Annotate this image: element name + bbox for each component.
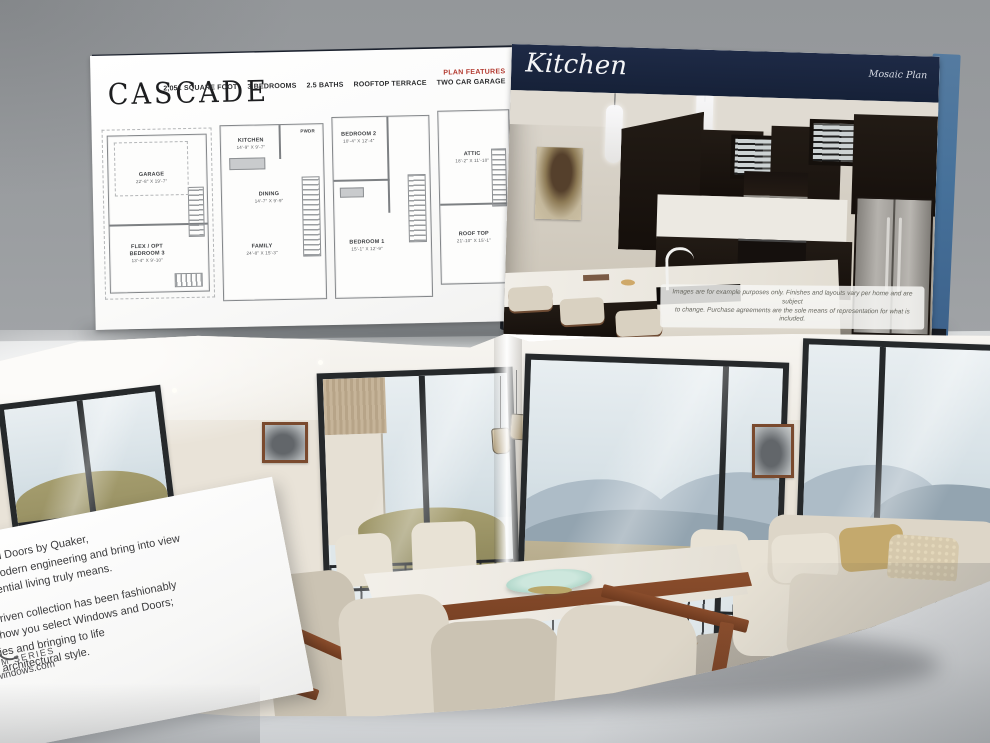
pendant-light (605, 105, 624, 163)
floorplan-stairs (408, 174, 427, 242)
room-name: BEDROOM 2 (341, 131, 376, 138)
room-label-flex: FLEX / OPT BEDROOM 3 13'-4" X 9'-10" (116, 243, 178, 264)
island-decor-books (583, 274, 609, 281)
photo-disclaimer: Images are for example purposes only. Fi… (660, 284, 924, 329)
room-dims: 18'-2" X 11'-10" (449, 158, 495, 165)
kitchen-photo: Images are for example purposes only. Fi… (503, 90, 938, 347)
stat-rooftop: ROOFTOP TERRACE (354, 80, 427, 89)
framed-photo-art (265, 425, 305, 460)
bar-stool (508, 285, 553, 311)
range-hood (744, 171, 809, 199)
kitchen-page: Kitchen Mosaic Plan (503, 44, 940, 359)
recessed-light (318, 360, 323, 365)
floorplan-stairs (188, 187, 205, 237)
room-dims: 10'-4" X 12'-4" (337, 138, 381, 145)
room-name: ATTIC (464, 151, 481, 157)
room-label-dining: DINING 14'-7" X 9'-9" (244, 191, 294, 205)
floorplan-bedroom-level: BEDROOM 2 10'-4" X 12'-4" BEDROOM 1 15'-… (331, 115, 433, 299)
room-label-bedroom1: BEDROOM 1 15'-1" X 12'-9" (343, 239, 391, 253)
room-label-attic: ATTIC 18'-2" X 11'-10" (449, 151, 495, 165)
floorplan-stairs (491, 148, 507, 206)
framed-photo-left (262, 422, 308, 463)
room-name: PWDR (300, 128, 315, 133)
room-name: DINING (259, 191, 280, 197)
framed-photo-right (752, 424, 794, 478)
plan-name-label: Mosaic Plan (869, 69, 928, 82)
room-dims: 14'-7" X 9'-9" (244, 198, 294, 205)
room-label-bedroom2: BEDROOM 2 10'-4" X 12'-4" (337, 131, 381, 145)
floorplan-stairs (302, 176, 322, 256)
stat-bedrooms: 3 BEDROOMS (247, 83, 296, 91)
room-label-family: FAMILY 24'-8" X 15'-3" (237, 243, 287, 257)
fridge-handle (897, 218, 902, 292)
room-dims: 13'-4" X 9'-10" (116, 257, 178, 264)
floorplan-wall (334, 179, 390, 182)
room-name: ROOF TOP (459, 231, 489, 238)
room-name: FAMILY (252, 243, 273, 249)
room-dims: 21'-10" X 15'-1" (449, 238, 499, 245)
room-dims: 24'-8" X 15'-3" (237, 250, 287, 257)
recessed-light (172, 388, 177, 393)
disclaimer-line-2: to change. Purchase agreements are the s… (675, 306, 910, 323)
room-name: BEDROOM 1 (349, 239, 384, 246)
disclaimer-line-1: Images are for example purposes only. Fi… (672, 288, 912, 305)
floorplan-garage-level: GARAGE 22'-8" X 19'-7" FLEX / OPT BEDROO… (107, 134, 210, 294)
island-decor-bowl (621, 279, 635, 285)
room-name: KITCHEN (238, 137, 264, 144)
cascade-page: CASCADE PLAN FEATURES 2,051 SQUARE FOOT … (90, 47, 520, 330)
photo-scene: CASCADE PLAN FEATURES 2,051 SQUARE FOOT … (0, 0, 990, 743)
room-name: GARAGE (139, 171, 164, 178)
plan-title: CASCADE (107, 75, 269, 112)
floorplan-wall (278, 125, 280, 159)
room-label-rooftop: ROOF TOP 21'-10" X 15'-1" (449, 230, 499, 244)
bar-stool (559, 297, 604, 325)
stat-garage: TWO CAR GARAGE (437, 78, 506, 86)
floorplan-kitchen-island (229, 157, 265, 170)
room-dims: 15'-1" X 12'-9" (343, 246, 391, 253)
floorplan-entry-steps (175, 273, 203, 288)
stat-baths: 2.5 BATHS (306, 82, 343, 90)
floorplan-roof-level: ATTIC 18'-2" X 11'-10" ROOF TOP 21'-10" … (437, 109, 513, 284)
floorplan-wall (386, 117, 390, 213)
floorplan-bath-vanity (340, 187, 364, 198)
room-label-garage: GARAGE 22'-8" X 19'-7" (116, 171, 186, 185)
room-label-kitchen: KITCHEN 14'-9" X 9'-7" (229, 137, 273, 151)
kitchen-page-title: Kitchen (525, 48, 627, 81)
bar-stool (615, 309, 662, 338)
room-dims: 14'-9" X 9'-7" (229, 144, 273, 151)
fridge-handle (885, 217, 890, 291)
plan-features-label: PLAN FEATURES (443, 68, 505, 76)
room-name: FLEX / OPT BEDROOM 3 (130, 244, 165, 258)
table-shadow-bottom-left (0, 683, 260, 743)
floorplan-garage-door (114, 141, 189, 197)
table-shadow-bottom-right (530, 563, 990, 743)
kitchen-wall-art (535, 147, 583, 220)
floorplan-living-level: KITCHEN 14'-9" X 9'-7" PWDR DINING 14'-7… (219, 123, 327, 301)
framed-photo-art (755, 427, 791, 475)
room-label-pwdr: PWDR (295, 128, 321, 134)
